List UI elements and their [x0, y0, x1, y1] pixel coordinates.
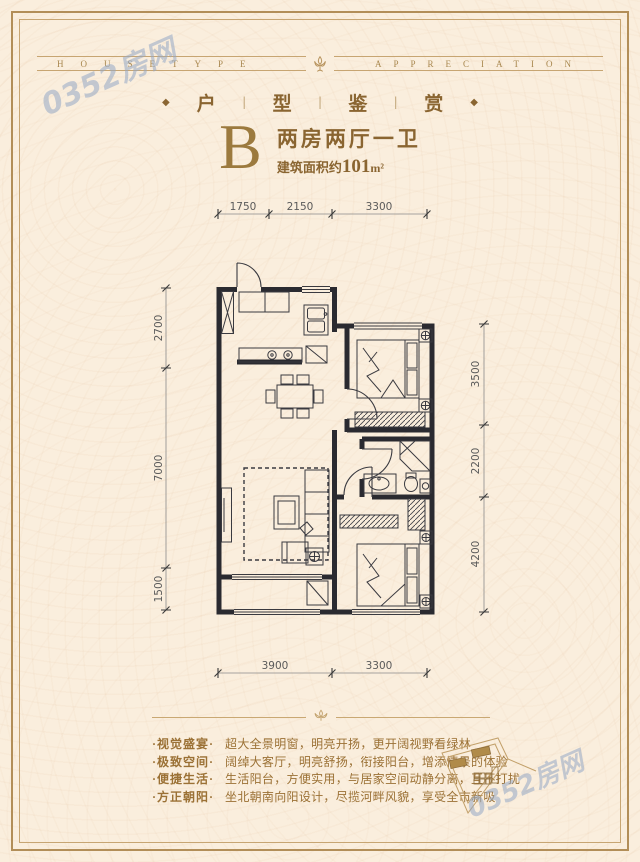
- feature-tag: ·便捷生活·: [152, 771, 214, 789]
- feature-desc: 超大全景明窗，明亮开扬，更开阔视野看绿林: [225, 736, 471, 754]
- shaft: [222, 292, 234, 334]
- title-separator: |: [319, 95, 322, 111]
- unit-letter: B: [219, 118, 262, 176]
- kitchen-fixtures: [239, 292, 328, 363]
- dimension-ticks: [161, 209, 489, 678]
- title-char: 赏: [424, 89, 443, 116]
- dining-set: [266, 375, 323, 418]
- diamond-icon: ◆: [470, 97, 478, 108]
- floorplan-poster: HOUSETYPE APPRECIATION ◆ 户 | 型 | 鉴 | 赏 ◆…: [0, 0, 640, 862]
- svg-text:3500: 3500: [470, 361, 482, 388]
- unit-area-prefix: 建筑面积约: [277, 160, 342, 175]
- svg-text:3300: 3300: [366, 201, 393, 213]
- unit-area: 建筑面积约101m²: [277, 156, 421, 178]
- chinese-title: ◆ 户 | 型 | 鉴 | 赏 ◆: [0, 89, 640, 116]
- header-band: HOUSETYPE APPRECIATION: [37, 56, 603, 71]
- dimension-lines: [166, 214, 484, 673]
- unit-title-block: B 两房两厅一卫 建筑面积约101m²: [0, 118, 640, 178]
- fleur-ornament-icon: [306, 708, 336, 723]
- windows: [232, 287, 422, 615]
- header-caption-left: HOUSETYPE: [57, 59, 263, 69]
- fleur-ornament-icon: [306, 55, 334, 72]
- svg-text:3900: 3900: [262, 660, 289, 672]
- title-char: 鉴: [348, 89, 367, 116]
- unit-area-unit: m²: [370, 161, 384, 175]
- svg-text:3300: 3300: [366, 660, 393, 672]
- svg-text:2700: 2700: [153, 315, 165, 342]
- unit-area-value: 101: [342, 156, 371, 177]
- title-separator: |: [394, 95, 397, 111]
- svg-text:1750: 1750: [230, 201, 257, 213]
- svg-text:2200: 2200: [470, 448, 482, 475]
- site-plan-sketch: [438, 733, 538, 833]
- diamond-icon: ◆: [162, 97, 170, 108]
- bedroom2-furniture: [340, 499, 432, 608]
- feature-tag: ·视觉盛宴·: [152, 736, 214, 754]
- header-caption-right: APPRECIATION: [375, 59, 583, 69]
- doors: [237, 263, 392, 497]
- unit-layout: 两房两厅一卫: [277, 123, 421, 153]
- title-char: 户: [197, 89, 216, 116]
- bedroom1-furniture: [355, 329, 432, 427]
- svg-text:2150: 2150: [287, 201, 314, 213]
- living-furniture: [222, 468, 330, 605]
- title-char: 型: [273, 89, 292, 116]
- svg-text:7000: 7000: [153, 455, 165, 482]
- svg-text:4200: 4200: [470, 541, 482, 568]
- unit-info: 两房两厅一卫 建筑面积约101m²: [277, 118, 421, 178]
- walls: [219, 287, 435, 615]
- svg-text:1500: 1500: [153, 576, 165, 603]
- footer-divider: [152, 717, 490, 718]
- feature-tag: ·极致空间·: [152, 754, 214, 772]
- title-separator: |: [243, 95, 246, 111]
- floor-plan: 1750 2150 3300 3900 3300 2700 7000 1500 …: [140, 192, 505, 697]
- feature-tag: ·方正朝阳·: [152, 789, 214, 807]
